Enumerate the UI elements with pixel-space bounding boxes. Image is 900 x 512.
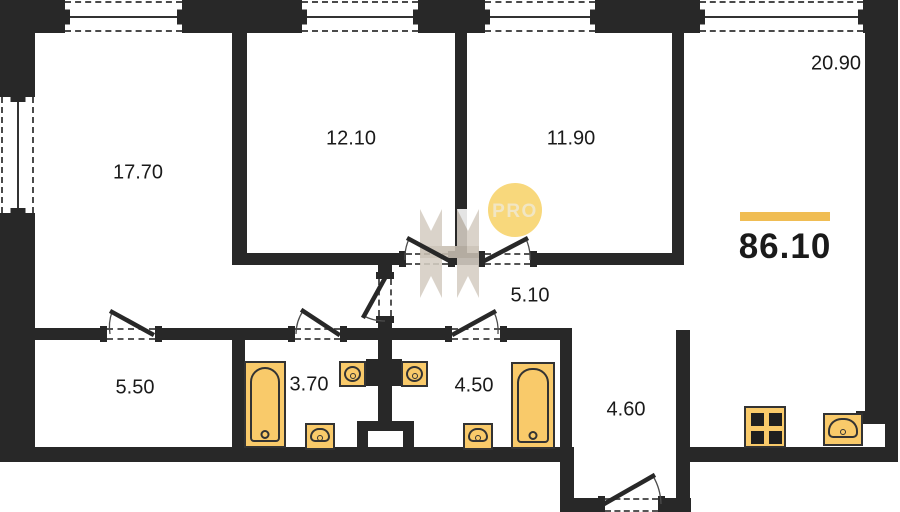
window-cap <box>10 93 25 102</box>
window <box>65 1 182 32</box>
bathtub-icon <box>244 361 286 448</box>
door-opening <box>107 328 155 340</box>
window-cap <box>590 9 599 24</box>
duct-shaft <box>366 359 402 386</box>
room-area-label-12-10: 12.10 <box>326 128 376 151</box>
door-opening <box>295 328 340 340</box>
sink-drain <box>840 429 846 435</box>
door-opening <box>406 253 448 265</box>
window <box>485 1 595 32</box>
duct-niche-opening <box>368 431 403 447</box>
room-area-label-20-90: 20.90 <box>811 53 861 76</box>
window <box>302 1 418 32</box>
window-cap <box>481 9 490 24</box>
stove-burner <box>751 413 764 426</box>
stove-burner <box>769 431 782 444</box>
wall <box>560 328 572 512</box>
wall <box>155 328 295 340</box>
wall <box>455 33 467 265</box>
floor-plan: PRO <box>0 0 900 512</box>
kitchen-sink-icon <box>823 413 863 446</box>
window-cap <box>10 208 25 217</box>
door-opening <box>378 279 392 316</box>
total-area-value: 86.10 <box>739 227 832 267</box>
bathtub-drain <box>529 431 538 440</box>
wall <box>232 253 406 265</box>
room-area-label-17-70: 17.70 <box>113 162 163 185</box>
wall <box>0 213 35 447</box>
bathtub-icon <box>511 362 555 449</box>
room-area-label-11-90: 11.90 <box>547 128 596 151</box>
washbasin-icon <box>401 361 428 387</box>
toilet-icon <box>463 423 493 450</box>
wall <box>676 330 690 512</box>
wall <box>0 33 35 97</box>
window <box>1 97 34 213</box>
room-area-label-5-10: 5.10 <box>511 285 550 308</box>
wall <box>500 328 560 340</box>
washbasin-tap <box>412 373 418 379</box>
toilet-drain <box>475 435 481 441</box>
door-opening <box>452 328 500 340</box>
wall <box>232 33 247 265</box>
bathtub-drain <box>261 430 270 439</box>
room-area-label-4-50: 4.50 <box>455 375 494 398</box>
wall <box>530 253 684 265</box>
stove-burner <box>751 431 764 444</box>
room-area-label-3-70: 3.70 <box>290 374 329 397</box>
wall <box>418 0 485 33</box>
wall <box>865 0 898 411</box>
window-cap <box>298 9 307 24</box>
watermark-pro-text: PRO <box>492 201 538 222</box>
wall <box>678 447 898 462</box>
stove-icon <box>744 406 786 448</box>
wall <box>595 0 700 33</box>
watermark-pro-badge: PRO <box>488 183 542 237</box>
door-opening <box>485 253 530 265</box>
window-cap <box>61 9 70 24</box>
room-area-label-5-50: 5.50 <box>116 377 155 400</box>
toilet-icon <box>305 423 335 450</box>
wall <box>35 328 107 340</box>
stove-burner <box>769 413 782 426</box>
window-cap <box>177 9 186 24</box>
window-cap <box>413 9 422 24</box>
wall <box>0 0 65 33</box>
washbasin-icon <box>339 361 366 387</box>
wall <box>672 33 684 265</box>
window-cap <box>696 9 705 24</box>
entrance-door-opening <box>605 498 658 512</box>
wall <box>182 0 302 33</box>
wall <box>340 328 452 340</box>
toilet-drain <box>317 435 323 441</box>
window <box>700 1 863 32</box>
washbasin-tap <box>350 373 356 379</box>
total-area-underline <box>740 212 830 221</box>
window-cap <box>858 9 867 24</box>
room-area-label-4-60: 4.60 <box>607 399 646 422</box>
